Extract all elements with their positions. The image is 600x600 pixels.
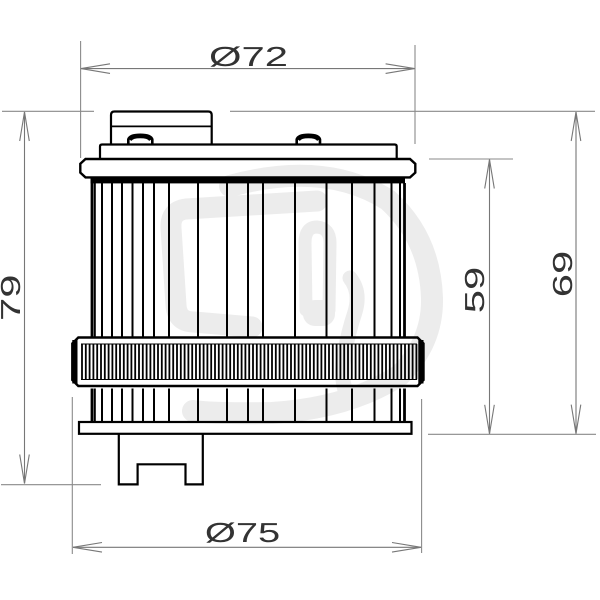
- svg-text:69: 69: [547, 251, 578, 298]
- svg-text:Ø72: Ø72: [209, 41, 288, 72]
- svg-text:Ø75: Ø75: [205, 517, 280, 548]
- svg-text:79: 79: [0, 274, 26, 321]
- svg-text:59: 59: [459, 267, 490, 314]
